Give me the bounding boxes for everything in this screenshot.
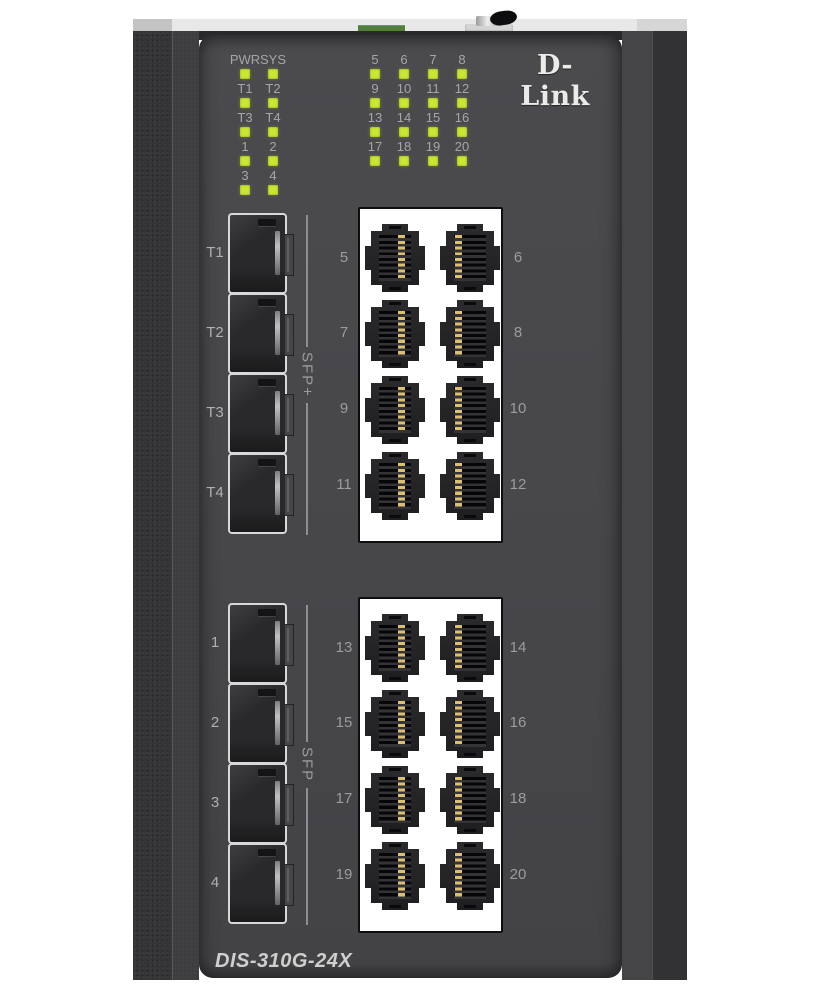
- jack-pins: [379, 235, 411, 281]
- led-label: 5: [371, 53, 378, 66]
- led-cell-12: 12: [455, 82, 469, 111]
- port-number-16: 16: [504, 713, 532, 733]
- jack-pin-contacts: [455, 777, 462, 823]
- led-cell-t3: T3: [237, 111, 252, 140]
- port-number-18: 18: [504, 789, 532, 809]
- jack-notch: [389, 677, 401, 680]
- led-cell-5: 5: [370, 53, 380, 82]
- port13-led-indicator: [370, 127, 380, 137]
- led-cell-1: 1: [240, 140, 250, 169]
- jack-notch: [464, 226, 476, 229]
- jack-notch: [389, 905, 401, 908]
- led-label: 6: [400, 53, 407, 66]
- sfp-port-label-1: 1: [199, 633, 231, 653]
- sfp-cage-slot: [275, 231, 280, 275]
- jack-pins: [454, 777, 486, 823]
- jack-notch: [464, 844, 476, 847]
- sfp-port-label-t2: T2: [199, 323, 231, 343]
- led-cell-t4: T4: [265, 111, 280, 140]
- port5-led-indicator: [370, 69, 380, 79]
- rj45-port-10: [440, 376, 500, 444]
- led-label: 2: [269, 140, 276, 153]
- led-cell-sys: SYS: [260, 53, 286, 82]
- led-cell-8: 8: [457, 53, 467, 82]
- jack-pin-contacts: [398, 701, 405, 747]
- led-cell-2: 2: [268, 140, 278, 169]
- jack-notch: [464, 302, 476, 305]
- jack-pins: [454, 311, 486, 357]
- sfp-cage-4: [228, 843, 287, 924]
- led-cell-4: 4: [268, 169, 278, 198]
- sfp-cage-latch: [285, 234, 294, 276]
- jack-pins: [379, 777, 411, 823]
- led-label: T4: [265, 111, 280, 124]
- jack-notch: [389, 287, 401, 290]
- sys-led-indicator: [268, 69, 278, 79]
- sfp-cage-slot: [275, 621, 280, 665]
- port-number-15: 15: [330, 713, 358, 733]
- sfp-cage-2: [228, 683, 287, 764]
- rj45-port-15: [365, 690, 425, 758]
- jack-pin-contacts: [398, 777, 405, 823]
- port-number-20: 20: [504, 865, 532, 885]
- jack-notch: [389, 302, 401, 305]
- jack-notch: [389, 692, 401, 695]
- jack-notch: [389, 439, 401, 442]
- led-label: 10: [397, 82, 411, 95]
- sfp-cage-latch: [285, 474, 294, 516]
- sfp-cage-t2: [228, 293, 287, 374]
- led-label: 13: [368, 111, 382, 124]
- led-cell-11: 11: [426, 82, 440, 111]
- led-label: 1: [241, 140, 248, 153]
- port-number-8: 8: [504, 323, 532, 343]
- jack-pins: [379, 701, 411, 747]
- led-label: 12: [455, 82, 469, 95]
- brand-logo: D-Link: [505, 50, 605, 112]
- jack-pin-contacts: [455, 625, 462, 671]
- port1-led-indicator: [240, 156, 250, 166]
- sfp-port-label-3: 3: [199, 793, 231, 813]
- sfp-port-label-t4: T4: [199, 483, 231, 503]
- sfp-plus-bracket-label: SFP+: [299, 352, 316, 398]
- jack-pin-contacts: [455, 701, 462, 747]
- port12-led-indicator: [457, 98, 467, 108]
- port17-led-indicator: [370, 156, 380, 166]
- port9-led-indicator: [370, 98, 380, 108]
- jack-notch: [389, 515, 401, 518]
- sfp-cage-slot: [275, 391, 280, 435]
- rj45-port-12: [440, 452, 500, 520]
- jack-pin-contacts: [455, 311, 462, 357]
- port19-led-indicator: [428, 156, 438, 166]
- led-label: PWR: [230, 53, 260, 66]
- port20-led-indicator: [457, 156, 467, 166]
- led-label: 18: [397, 140, 411, 153]
- led-cell-14: 14: [397, 111, 411, 140]
- jack-notch: [464, 753, 476, 756]
- port10-led-indicator: [399, 98, 409, 108]
- led-label: T2: [265, 82, 280, 95]
- jack-pin-contacts: [398, 625, 405, 671]
- led-label: 9: [371, 82, 378, 95]
- chassis-right-bevel: [622, 31, 652, 980]
- jack-pins: [454, 701, 486, 747]
- jack-notch: [464, 515, 476, 518]
- rj45-port-8: [440, 300, 500, 368]
- led-cell-7: 7: [428, 53, 438, 82]
- led-cell-16: 16: [455, 111, 469, 140]
- port18-led-indicator: [399, 156, 409, 166]
- sfp-cage-latch: [285, 624, 294, 666]
- sfp-cage-stack: [228, 603, 287, 924]
- jack-notch: [464, 677, 476, 680]
- sfp-cage-1: [228, 603, 287, 684]
- port6-led-indicator: [399, 69, 409, 79]
- rj45-port-11: [365, 452, 425, 520]
- chassis-right-rail: [652, 31, 687, 980]
- rj45-port-7: [365, 300, 425, 368]
- led-label: 15: [426, 111, 440, 124]
- port4-led-indicator: [268, 185, 278, 195]
- jack-pin-contacts: [455, 235, 462, 281]
- port11-led-indicator: [428, 98, 438, 108]
- led-cell-t1: T1: [237, 82, 252, 111]
- port-number-10: 10: [504, 399, 532, 419]
- sfp-cage-slot: [275, 701, 280, 745]
- jack-notch: [464, 378, 476, 381]
- jack-pins: [379, 853, 411, 899]
- led-cell-15: 15: [426, 111, 440, 140]
- led-label: T3: [237, 111, 252, 124]
- led-cell-19: 19: [426, 140, 440, 169]
- led-cell-9: 9: [370, 82, 380, 111]
- rj45-port-17: [365, 766, 425, 834]
- sfp-cage-slot: [275, 311, 280, 355]
- jack-pin-contacts: [455, 387, 462, 433]
- jack-notch: [389, 753, 401, 756]
- jack-pins: [379, 463, 411, 509]
- led-label: 11: [426, 82, 440, 95]
- jack-pin-contacts: [398, 311, 405, 357]
- sfp-cage-latch: [285, 394, 294, 436]
- led-label: T1: [237, 82, 252, 95]
- rj45-port-6: [440, 224, 500, 292]
- jack-pins: [379, 387, 411, 433]
- sfp-cage-t1: [228, 213, 287, 294]
- sfp-port-label-4: 4: [199, 873, 231, 893]
- jack-notch: [464, 439, 476, 442]
- jack-pin-contacts: [398, 463, 405, 509]
- port3-led-indicator: [240, 185, 250, 195]
- rj45-group-lower: 13 15 17 19 14 16 18 20: [330, 597, 545, 933]
- sfp-port-label-t3: T3: [199, 403, 231, 423]
- port16-led-indicator: [457, 127, 467, 137]
- bracket-line: [306, 215, 308, 347]
- port-number-11: 11: [330, 475, 358, 495]
- jack-pin-contacts: [455, 463, 462, 509]
- jack-notch: [389, 829, 401, 832]
- jack-pins: [454, 625, 486, 671]
- led-cell-17: 17: [368, 140, 382, 169]
- sfp-cage-slot: [275, 781, 280, 825]
- pwr-led-indicator: [240, 69, 250, 79]
- led-cell-3: 3: [240, 169, 250, 198]
- led-cell-6: 6: [399, 53, 409, 82]
- jack-pins: [379, 311, 411, 357]
- led-cell-t2: T2: [265, 82, 280, 111]
- rj45-panel-upper: [358, 207, 503, 543]
- bracket-line: [306, 605, 308, 742]
- led-label: 3: [241, 169, 248, 182]
- led-label: 17: [368, 140, 382, 153]
- jack-notch: [389, 378, 401, 381]
- led-cell-18: 18: [397, 140, 411, 169]
- rj45-port-5: [365, 224, 425, 292]
- rj45-port-14: [440, 614, 500, 682]
- chassis-left-rail: [133, 31, 172, 980]
- bracket-line: [306, 403, 308, 535]
- jack-notch: [464, 287, 476, 290]
- grounding-screw: [461, 11, 519, 33]
- front-panel: PWR SYS T1 T2 T3 T4 1 2 3 4 5 6 7 8 9 10…: [199, 35, 622, 978]
- sfp-cage-t3: [228, 373, 287, 454]
- jack-pins: [454, 235, 486, 281]
- port-number-6: 6: [504, 248, 532, 268]
- jack-notch: [464, 363, 476, 366]
- port-number-5: 5: [330, 248, 358, 268]
- rj45-port-16: [440, 690, 500, 758]
- led-label: SYS: [260, 53, 286, 66]
- jack-notch: [389, 768, 401, 771]
- led-cell-13: 13: [368, 111, 382, 140]
- sfp-cage-latch: [285, 864, 294, 906]
- led-label: 7: [429, 53, 436, 66]
- port-number-14: 14: [504, 638, 532, 658]
- sfp-plus-bracket: SFP+: [298, 215, 316, 535]
- led-label: 19: [426, 140, 440, 153]
- port-number-7: 7: [330, 323, 358, 343]
- jack-pins: [454, 387, 486, 433]
- jack-pin-contacts: [398, 235, 405, 281]
- jack-pins: [454, 463, 486, 509]
- rj45-port-9: [365, 376, 425, 444]
- jack-pin-contacts: [398, 387, 405, 433]
- rj45-port-20: [440, 842, 500, 910]
- led-cell-10: 10: [397, 82, 411, 111]
- jack-pin-contacts: [455, 853, 462, 899]
- jack-notch: [389, 226, 401, 229]
- jack-notch: [389, 454, 401, 457]
- sfp-cage-3: [228, 763, 287, 844]
- jack-pin-contacts: [398, 853, 405, 899]
- t4-led-indicator: [268, 127, 278, 137]
- led-label: 20: [455, 140, 469, 153]
- led-label: 4: [269, 169, 276, 182]
- jack-notch: [464, 829, 476, 832]
- sfp-cage-slot: [275, 861, 280, 905]
- status-led-block: PWR SYS T1 T2 T3 T4 1 2 3 4: [231, 53, 287, 198]
- led-cell-20: 20: [455, 140, 469, 169]
- t1-led-indicator: [240, 98, 250, 108]
- product-photo-dlink-switch: PWR SYS T1 T2 T3 T4 1 2 3 4 5 6 7 8 9 10…: [0, 0, 820, 1000]
- sfp-plus-cage-stack: [228, 213, 287, 534]
- port-number-19: 19: [330, 865, 358, 885]
- sfp-port-label-2: 2: [199, 713, 231, 733]
- jack-notch: [464, 616, 476, 619]
- sfp-cage-latch: [285, 784, 294, 826]
- jack-notch: [464, 768, 476, 771]
- jack-notch: [389, 616, 401, 619]
- port8-led-indicator: [457, 69, 467, 79]
- jack-notch: [464, 454, 476, 457]
- t2-led-indicator: [268, 98, 278, 108]
- port15-led-indicator: [428, 127, 438, 137]
- rj45-group-upper: 5 7 9 11 6 8 10 12: [330, 207, 545, 543]
- port-number-17: 17: [330, 789, 358, 809]
- port-number-9: 9: [330, 399, 358, 419]
- sfp-bracket: SFP: [298, 605, 316, 925]
- port-led-block: 5 6 7 8 9 10 11 12 13 14 15 16 17 18 19 …: [361, 53, 476, 169]
- sfp-cage-t4: [228, 453, 287, 534]
- jack-notch: [389, 363, 401, 366]
- rj45-panel-lower: [358, 597, 503, 933]
- led-label: 8: [458, 53, 465, 66]
- port-number-13: 13: [330, 638, 358, 658]
- bracket-line: [306, 788, 308, 925]
- sfp-bracket-label: SFP: [299, 747, 316, 782]
- jack-pins: [379, 625, 411, 671]
- sfp-cage-latch: [285, 314, 294, 356]
- led-label: 16: [455, 111, 469, 124]
- port14-led-indicator: [399, 127, 409, 137]
- rj45-port-18: [440, 766, 500, 834]
- jack-pins: [454, 853, 486, 899]
- rj45-port-19: [365, 842, 425, 910]
- port-number-12: 12: [504, 475, 532, 495]
- rj45-port-13: [365, 614, 425, 682]
- model-label: DIS-310G-24X: [215, 950, 352, 973]
- jack-notch: [389, 844, 401, 847]
- jack-notch: [464, 905, 476, 908]
- port2-led-indicator: [268, 156, 278, 166]
- jack-notch: [464, 692, 476, 695]
- led-cell-pwr: PWR: [230, 53, 260, 82]
- sfp-cage-slot: [275, 471, 280, 515]
- port7-led-indicator: [428, 69, 438, 79]
- chassis-left-bevel: [172, 31, 199, 980]
- led-label: 14: [397, 111, 411, 124]
- sfp-cage-latch: [285, 704, 294, 746]
- t3-led-indicator: [240, 127, 250, 137]
- sfp-port-label-t1: T1: [199, 243, 231, 263]
- screw-knob: [489, 9, 518, 27]
